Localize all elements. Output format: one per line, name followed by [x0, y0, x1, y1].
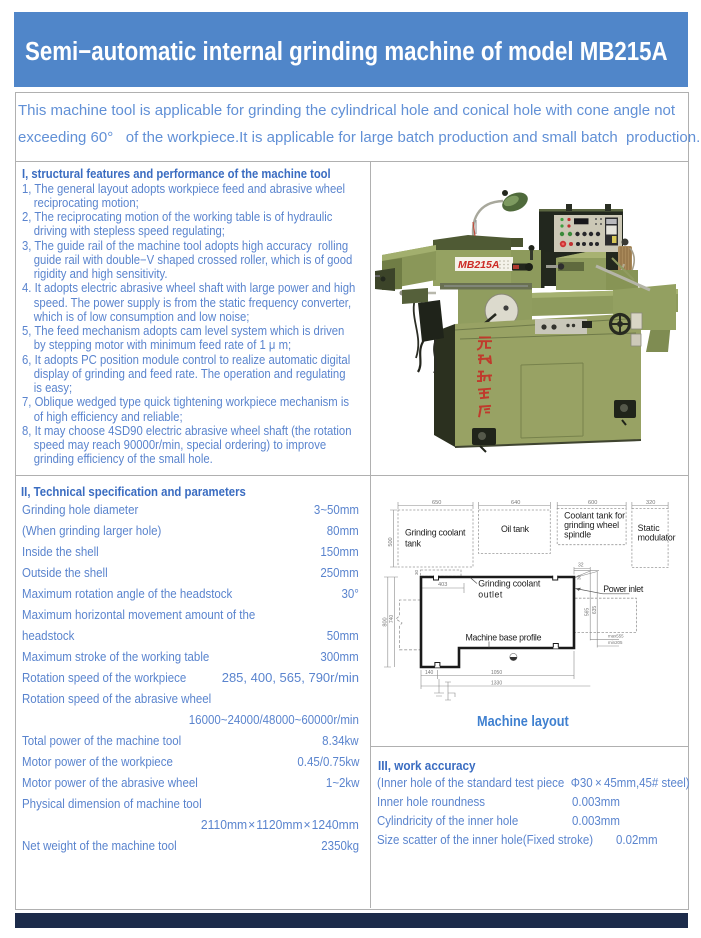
- svg-text:403: 403: [438, 582, 447, 588]
- svg-text:30: 30: [414, 569, 419, 575]
- svg-text:tank: tank: [405, 539, 422, 549]
- svg-text:Machine base profile: Machine base profile: [466, 633, 542, 643]
- svg-text:500: 500: [388, 537, 394, 546]
- svg-text:Oil tank: Oil tank: [501, 524, 530, 534]
- svg-text:640: 640: [511, 500, 520, 506]
- svg-text:635: 635: [592, 606, 598, 615]
- svg-text:modulator: modulator: [638, 533, 676, 543]
- svg-text:650: 650: [432, 500, 441, 506]
- svg-text:320: 320: [646, 500, 655, 506]
- svg-text:Grinding coolant: Grinding coolant: [478, 579, 541, 589]
- svg-text:Coolant tank for: Coolant tank for: [564, 511, 625, 521]
- svg-text:32: 32: [578, 563, 584, 569]
- svg-text:30: 30: [577, 574, 582, 580]
- svg-text:565: 565: [584, 608, 590, 617]
- svg-text:740: 740: [389, 615, 395, 624]
- svg-text:1330: 1330: [491, 680, 502, 686]
- svg-text:outlet: outlet: [478, 590, 503, 600]
- svg-text:800: 800: [383, 617, 389, 626]
- svg-text:max555: max555: [608, 633, 624, 638]
- svg-text:Grinding coolant: Grinding coolant: [405, 528, 466, 538]
- svg-text:Power inlet: Power inlet: [603, 584, 644, 594]
- svg-text:min205: min205: [608, 640, 623, 645]
- svg-text:1050: 1050: [491, 670, 502, 676]
- svg-text:600: 600: [588, 500, 597, 506]
- svg-text:MB215A: MB215A: [458, 259, 499, 271]
- svg-text:grinding wheel: grinding wheel: [564, 520, 619, 530]
- svg-text:Static: Static: [638, 523, 661, 533]
- svg-text:spindle: spindle: [564, 530, 591, 540]
- svg-text:140: 140: [425, 670, 434, 676]
